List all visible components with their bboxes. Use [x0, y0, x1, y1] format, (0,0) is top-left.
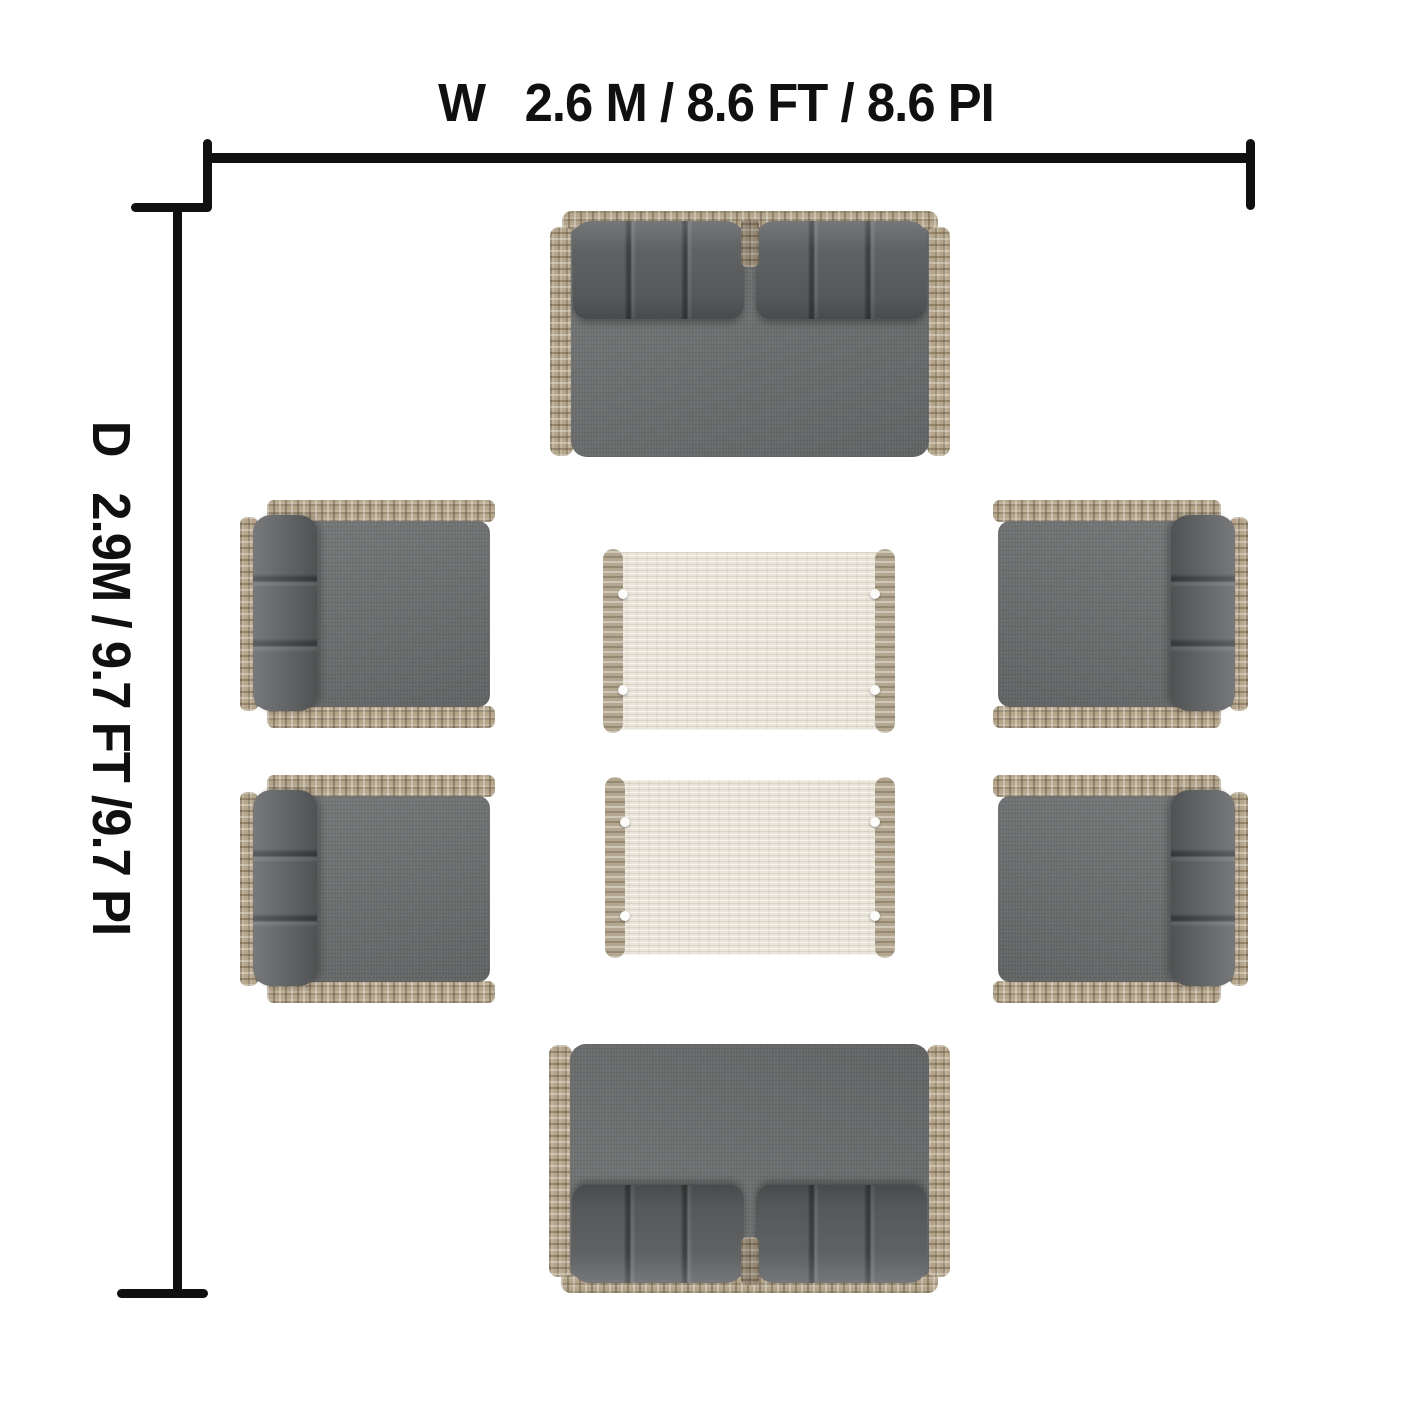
chair-back-pillow: [1171, 790, 1235, 986]
table-rail-left: [603, 549, 623, 733]
table-foot: [620, 817, 630, 827]
coffee-table-1: [603, 549, 895, 733]
coffee-table-2: [605, 777, 895, 958]
width-tick-right: [1246, 139, 1255, 210]
armchair-right-2: [993, 775, 1248, 1003]
table-rail-right: [875, 549, 895, 733]
loveseat-bottom: [549, 1043, 950, 1293]
sofa-back-pillow-left: [573, 221, 744, 319]
chair-back-pillow: [1171, 515, 1235, 711]
width-dimension-line: [208, 153, 1252, 163]
sofa-arm-left: [550, 227, 573, 456]
depth-axis-letter: D: [81, 421, 141, 457]
width-dimension-value: 2.6 M / 8.6 FT / 8.6 PI: [525, 73, 994, 133]
chair-back-pillow: [253, 515, 317, 711]
width-dimension-label: W2.6 M / 8.6 FT / 8.6 PI: [438, 76, 994, 130]
depth-dimension-label: D2.9M / 9.7 FT /9.7 PI: [84, 421, 138, 935]
armchair-left-1: [240, 500, 495, 728]
furniture-dimension-diagram: W2.6 M / 8.6 FT / 8.6 PI D2.9M / 9.7 FT …: [0, 0, 1417, 1417]
sofa-arm-left: [549, 1045, 572, 1277]
width-tick-left: [203, 139, 212, 212]
armchair-left-2: [240, 775, 495, 1003]
chair-back-pillow: [253, 790, 317, 986]
depth-tick-bottom: [117, 1289, 208, 1298]
table-top: [618, 780, 882, 955]
table-foot: [870, 911, 880, 921]
sofa-arm-right: [927, 1045, 950, 1277]
table-rail-right: [875, 777, 895, 958]
sofa-center-clip: [741, 1237, 759, 1285]
armchair-right-1: [993, 500, 1248, 728]
sofa-arm-right: [927, 227, 950, 456]
table-foot: [620, 911, 630, 921]
width-axis-letter: W: [438, 73, 485, 133]
table-top: [616, 552, 882, 730]
loveseat-top: [550, 211, 950, 458]
depth-dimension-line: [173, 206, 182, 1295]
table-foot: [870, 817, 880, 827]
table-rail-left: [605, 777, 625, 958]
depth-tick-top: [131, 203, 211, 212]
depth-dimension-value: 2.9M / 9.7 FT /9.7 PI: [81, 492, 141, 935]
sofa-center-clip: [741, 219, 759, 267]
sofa-back-pillow-right: [756, 221, 927, 319]
sofa-back-pillow-left: [572, 1185, 744, 1283]
sofa-back-pillow-right: [756, 1185, 928, 1283]
